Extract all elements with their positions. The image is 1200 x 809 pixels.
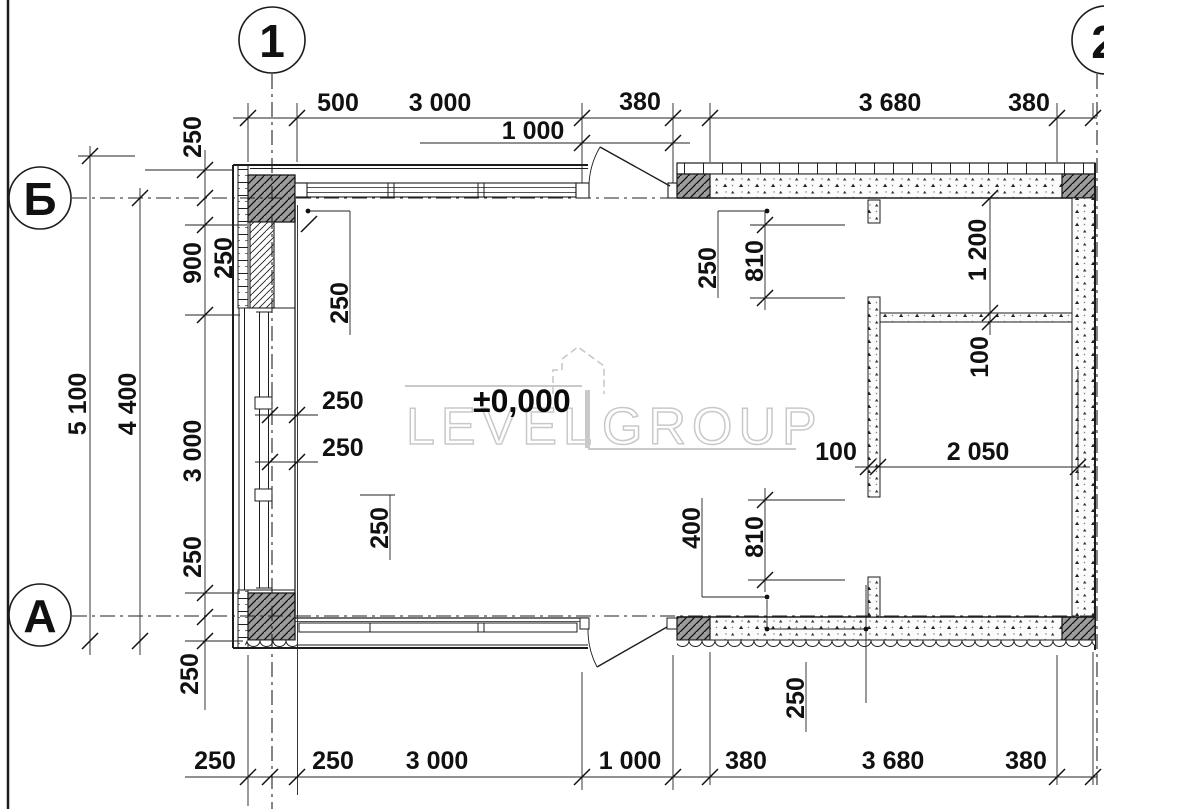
partition-stub-bottom [868,577,880,617]
top-door-leaf [600,147,670,186]
insulation-scallops-br [677,640,1095,650]
dim-left-250d: 250 [176,653,204,695]
insulation-scallops-bl [245,640,297,648]
dim-inner-250-win2: 250 [322,434,364,462]
grid-label-a: А [23,590,56,642]
dim-inner-250-bl: 250 [366,507,394,549]
dim-left-250b: 250 [210,237,238,279]
top-wall-massive [677,163,1095,198]
dim-inner-810-top: 810 [741,240,769,282]
watermark-divider [585,390,590,448]
left-wall-hatch [250,222,274,308]
bottom-door-swing-arc [588,629,597,667]
bottom-wall-massive [677,617,1095,650]
top-entry-door [589,147,677,198]
dim-bot-250a: 250 [194,747,236,775]
dim-inner-810-bot: 810 [741,516,769,558]
dim-bot-3000: 3 000 [406,747,469,775]
corner-pier-top-right [1062,174,1095,198]
dim-top-door-1000: 1 000 [502,117,565,145]
dim-inner-1200: 1 200 [964,219,992,282]
dim-inner-250-tl: 250 [326,282,354,324]
dim-inner-100-h: 100 [815,438,857,466]
floor-plan-page: LEVEL GROUP [0,0,1200,809]
watermark-word-right: GROUP [602,398,823,456]
dim-top-3680: 3 680 [859,89,922,117]
grid-label-1: 1 [259,15,285,67]
left-wall-cladding-bottom [238,590,248,648]
level-mark: ±0,000 [473,383,571,419]
dim-inner-250-bot: 250 [782,677,810,719]
bottom-door-leaf [597,627,667,667]
dim-top-380b: 380 [1008,89,1050,117]
partition-horizontal [880,313,1072,322]
dim-inner-2050: 2 050 [947,438,1010,466]
dim-top-380a: 380 [619,88,661,116]
grid-label-b: Б [23,173,56,225]
dim-left-5100: 5 100 [64,373,92,436]
watermark: LEVEL GROUP [405,347,823,456]
dim-bot-1000: 1 000 [599,747,662,775]
dim-inner-400: 400 [678,507,706,549]
dim-left-4400: 4 400 [114,373,142,436]
dim-top-500: 500 [317,89,359,117]
left-wall-cladding-top [238,165,248,308]
dim-top-3000: 3 000 [409,89,472,117]
dim-left-250top: 250 [179,116,207,158]
pier-top-mid [677,174,710,198]
dim-left-3000: 3 000 [179,420,207,483]
right-wall [1072,163,1095,650]
dim-left-900: 900 [179,242,207,284]
dim-bot-380b: 380 [1005,747,1047,775]
bottom-entry-door [588,618,677,667]
dim-inner-250-win1: 250 [322,387,364,415]
corner-pier-bottom-right [1062,617,1095,640]
partition-stub-top [868,200,880,223]
dim-bot-3680: 3 680 [862,747,925,775]
pier-bottom-mid [677,617,710,640]
dim-left-250c: 250 [179,536,207,578]
dim-inner-250-door-top: 250 [694,247,722,289]
dim-bot-250b: 250 [312,747,354,775]
grid-label-2: 2 [1091,16,1117,68]
floor-plan-svg: LEVEL GROUP [0,0,1200,809]
top-door-swing-arc [589,147,600,184]
dim-bot-380a: 380 [725,747,767,775]
grid-bubble-2 [1072,6,1140,74]
left-window [239,308,272,590]
dim-inner-100-v: 100 [966,336,994,378]
